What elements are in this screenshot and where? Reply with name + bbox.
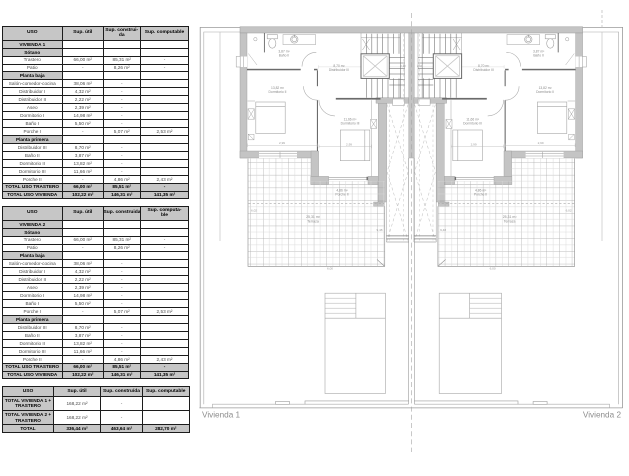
svg-text:2,99: 2,99 — [538, 141, 544, 145]
svg-text:Baño II: Baño II — [279, 54, 290, 58]
svg-text:Dormitorio II: Dormitorio II — [269, 90, 287, 94]
svg-text:Dormitorio III: Dormitorio III — [341, 122, 360, 126]
svg-text:Baño II: Baño II — [533, 54, 544, 58]
svg-text:Porche II: Porche II — [474, 193, 487, 197]
svg-text:Dormitorio III: Dormitorio III — [463, 122, 482, 126]
svg-text:2,10: 2,10 — [417, 64, 423, 68]
svg-text:6,00: 6,00 — [327, 266, 333, 270]
svg-text:Terraza: Terraza — [307, 219, 319, 223]
svg-text:6,02: 6,02 — [566, 209, 572, 213]
svg-text:2,99: 2,99 — [279, 141, 285, 145]
svg-text:9,48: 9,48 — [440, 228, 446, 232]
svg-text:Distribuidor III: Distribuidor III — [329, 68, 349, 72]
svg-text:Vivienda 1: Vivienda 1 — [202, 410, 241, 419]
svg-text:2,99: 2,99 — [471, 143, 477, 147]
svg-text:2,99: 2,99 — [346, 143, 352, 147]
svg-text:6,02: 6,02 — [251, 209, 257, 213]
svg-text:2,10: 2,10 — [400, 64, 406, 68]
svg-text:Vivienda 2: Vivienda 2 — [583, 410, 622, 419]
svg-text:Porche II: Porche II — [335, 193, 348, 197]
svg-text:Terraza: Terraza — [504, 219, 516, 223]
svg-text:Distribuidor III: Distribuidor III — [473, 68, 493, 72]
svg-text:9,48: 9,48 — [376, 228, 382, 232]
svg-text:6,00: 6,00 — [490, 266, 496, 270]
svg-text:Dormitorio II: Dormitorio II — [536, 90, 554, 94]
